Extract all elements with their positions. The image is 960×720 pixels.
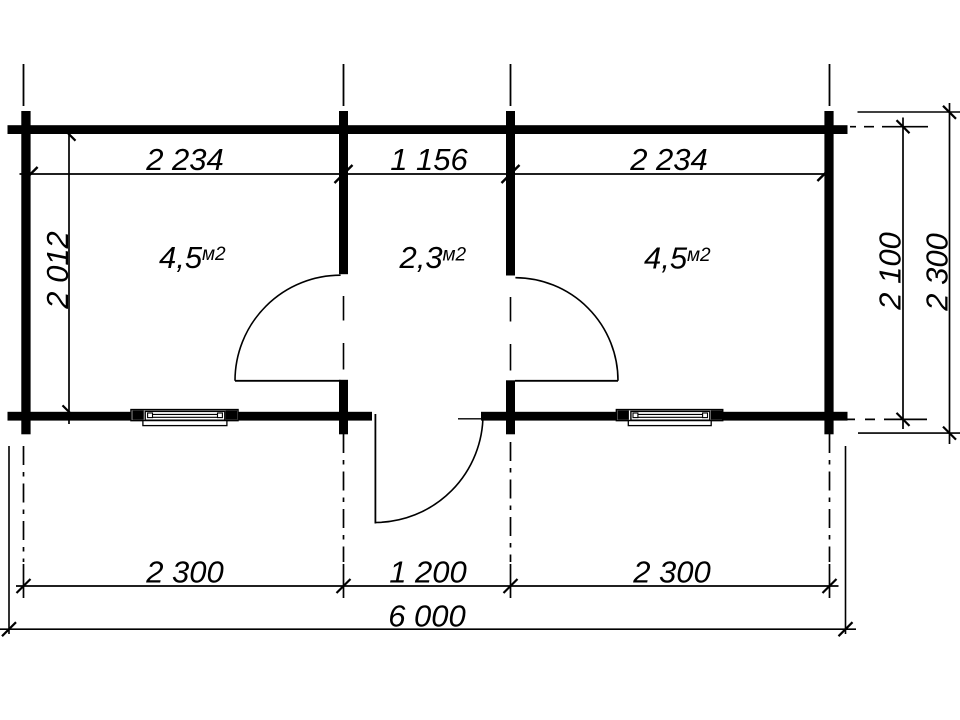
- svg-text:2 300: 2 300: [632, 555, 711, 590]
- svg-text:2 100: 2 100: [873, 232, 908, 311]
- svg-text:2 300: 2 300: [145, 555, 224, 590]
- svg-text:2 234: 2 234: [145, 142, 224, 177]
- svg-text:2 012: 2 012: [40, 231, 75, 310]
- svg-text:4,5: 4,5: [159, 240, 203, 275]
- svg-text:4,5: 4,5: [644, 241, 688, 276]
- svg-text:м2: м2: [202, 244, 226, 265]
- svg-text:2,3: 2,3: [399, 240, 443, 275]
- svg-text:м2: м2: [687, 245, 711, 266]
- svg-text:м2: м2: [443, 244, 467, 265]
- svg-text:2 300: 2 300: [920, 233, 955, 312]
- svg-text:6 000: 6 000: [388, 599, 466, 634]
- svg-text:2 234: 2 234: [629, 142, 708, 177]
- svg-text:1 200: 1 200: [389, 555, 467, 590]
- svg-text:1 156: 1 156: [390, 142, 468, 177]
